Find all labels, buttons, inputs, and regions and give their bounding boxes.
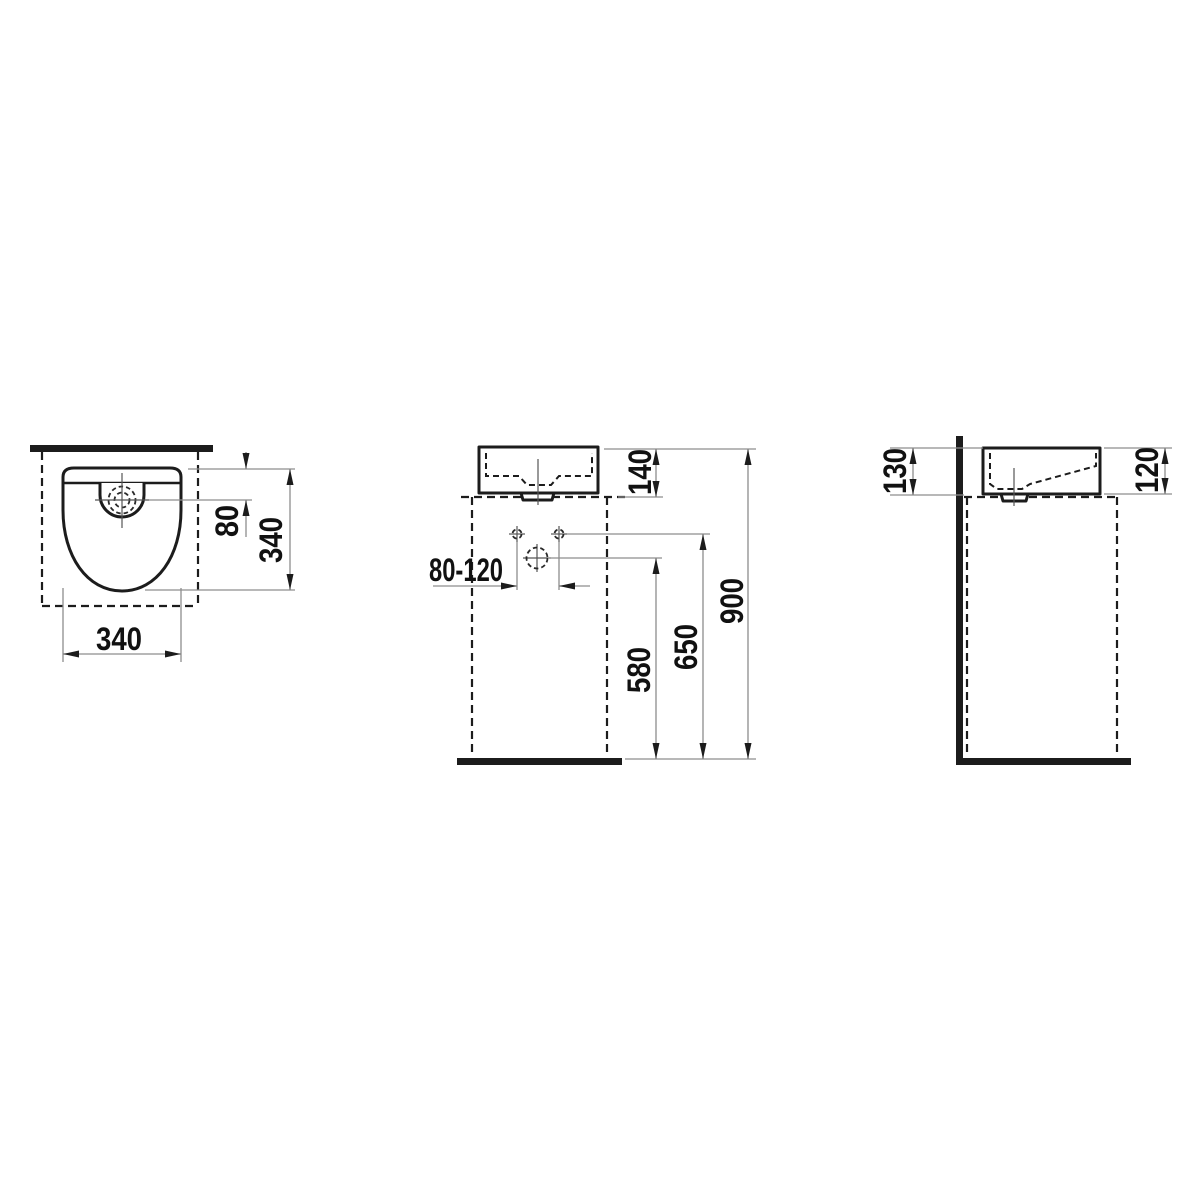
- floor-line: [457, 758, 622, 765]
- dim-label-tap-offset: 80: [209, 505, 245, 537]
- wall-line: [956, 436, 963, 765]
- washbasin-dimension-drawing: 80 340 340: [0, 0, 1200, 1200]
- side-view: 130 120: [877, 436, 1172, 765]
- supply-point-right: [551, 526, 567, 542]
- dim-label-rim-height: 900: [714, 578, 750, 624]
- dim-label-basin-height: 140: [622, 449, 658, 495]
- dim-label-overall-depth: 340: [253, 517, 289, 563]
- front-view: 140 80-120 580 650 900: [429, 447, 756, 765]
- drain-point-symbol: [523, 544, 551, 572]
- dim-label-supply-height: 650: [668, 624, 704, 670]
- dim-label-supply-spacing: 80-120: [429, 552, 503, 588]
- dim-label-drain-height: 580: [621, 647, 657, 693]
- wall-line: [30, 445, 213, 452]
- dim-label-back-height: 130: [877, 448, 913, 494]
- floor-line: [956, 758, 1131, 765]
- top-view: 80 340 340: [30, 445, 295, 662]
- dim-label-front-height: 120: [1129, 447, 1165, 493]
- supply-point-left: [509, 526, 525, 542]
- dim-label-overall-width: 340: [96, 621, 142, 657]
- basin-side-outline: [983, 448, 1100, 494]
- technical-drawing-canvas: 80 340 340: [0, 0, 1200, 1200]
